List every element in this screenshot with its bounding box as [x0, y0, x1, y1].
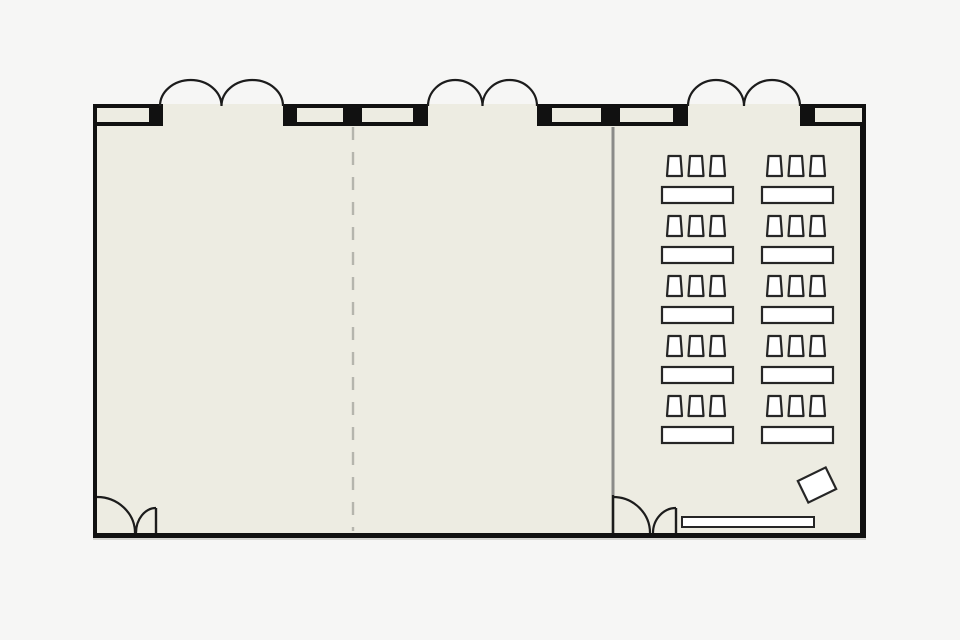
- classroom-chair: [810, 396, 825, 416]
- classroom-chair: [710, 156, 725, 176]
- wall-panel: [95, 106, 151, 124]
- door-swing-arc: [688, 80, 800, 106]
- wall-panel: [618, 106, 675, 124]
- wall-panel: [813, 106, 864, 124]
- classroom-chair: [667, 396, 682, 416]
- door-jamb: [677, 104, 688, 126]
- classroom-table: [662, 427, 733, 443]
- classroom-table: [762, 307, 833, 323]
- classroom-chair: [767, 336, 782, 356]
- classroom-table: [662, 247, 733, 263]
- classroom-chair: [810, 156, 825, 176]
- classroom-chair: [789, 156, 804, 176]
- classroom-chair: [710, 396, 725, 416]
- classroom-chair: [789, 336, 804, 356]
- classroom-chair: [667, 216, 682, 236]
- wall-panel: [360, 106, 415, 124]
- classroom-table: [762, 427, 833, 443]
- classroom-chair: [689, 396, 704, 416]
- door-jamb: [800, 104, 811, 126]
- classroom-chair: [767, 276, 782, 296]
- door-jamb: [417, 104, 428, 126]
- classroom-table: [762, 247, 833, 263]
- classroom-table: [662, 367, 733, 383]
- classroom-chair: [689, 276, 704, 296]
- wall-shadow: [93, 538, 866, 540]
- classroom-chair: [767, 216, 782, 236]
- classroom-chair: [710, 216, 725, 236]
- classroom-table: [662, 187, 733, 203]
- classroom-chair: [710, 276, 725, 296]
- room-floor: [93, 104, 866, 538]
- head-table: [682, 517, 814, 527]
- left-wall: [93, 104, 97, 538]
- right-wall: [860, 104, 866, 538]
- classroom-chair: [667, 276, 682, 296]
- classroom-chair: [689, 336, 704, 356]
- classroom-chair: [767, 396, 782, 416]
- door-swing-arc: [160, 80, 283, 106]
- classroom-chair: [789, 396, 804, 416]
- classroom-chair: [810, 216, 825, 236]
- door-jamb: [537, 104, 548, 126]
- bottom-wall: [93, 533, 866, 538]
- classroom-chair: [810, 336, 825, 356]
- classroom-chair: [689, 216, 704, 236]
- wall-panel: [550, 106, 603, 124]
- classroom-chair: [667, 336, 682, 356]
- door-jamb: [347, 104, 358, 126]
- classroom-chair: [767, 156, 782, 176]
- classroom-chair: [789, 276, 804, 296]
- door-jamb: [605, 104, 616, 126]
- classroom-chair: [689, 156, 704, 176]
- door-jamb: [283, 104, 293, 126]
- wall-panel: [295, 106, 345, 124]
- classroom-chair: [667, 156, 682, 176]
- floor-plan-canvas: [0, 0, 960, 640]
- classroom-table: [662, 307, 733, 323]
- door-jamb: [153, 104, 163, 126]
- floor-plan-drawing: [0, 0, 960, 640]
- door-swing-arc: [428, 80, 537, 106]
- classroom-chair: [810, 276, 825, 296]
- classroom-table: [762, 367, 833, 383]
- classroom-chair: [789, 216, 804, 236]
- classroom-chair: [710, 336, 725, 356]
- classroom-table: [762, 187, 833, 203]
